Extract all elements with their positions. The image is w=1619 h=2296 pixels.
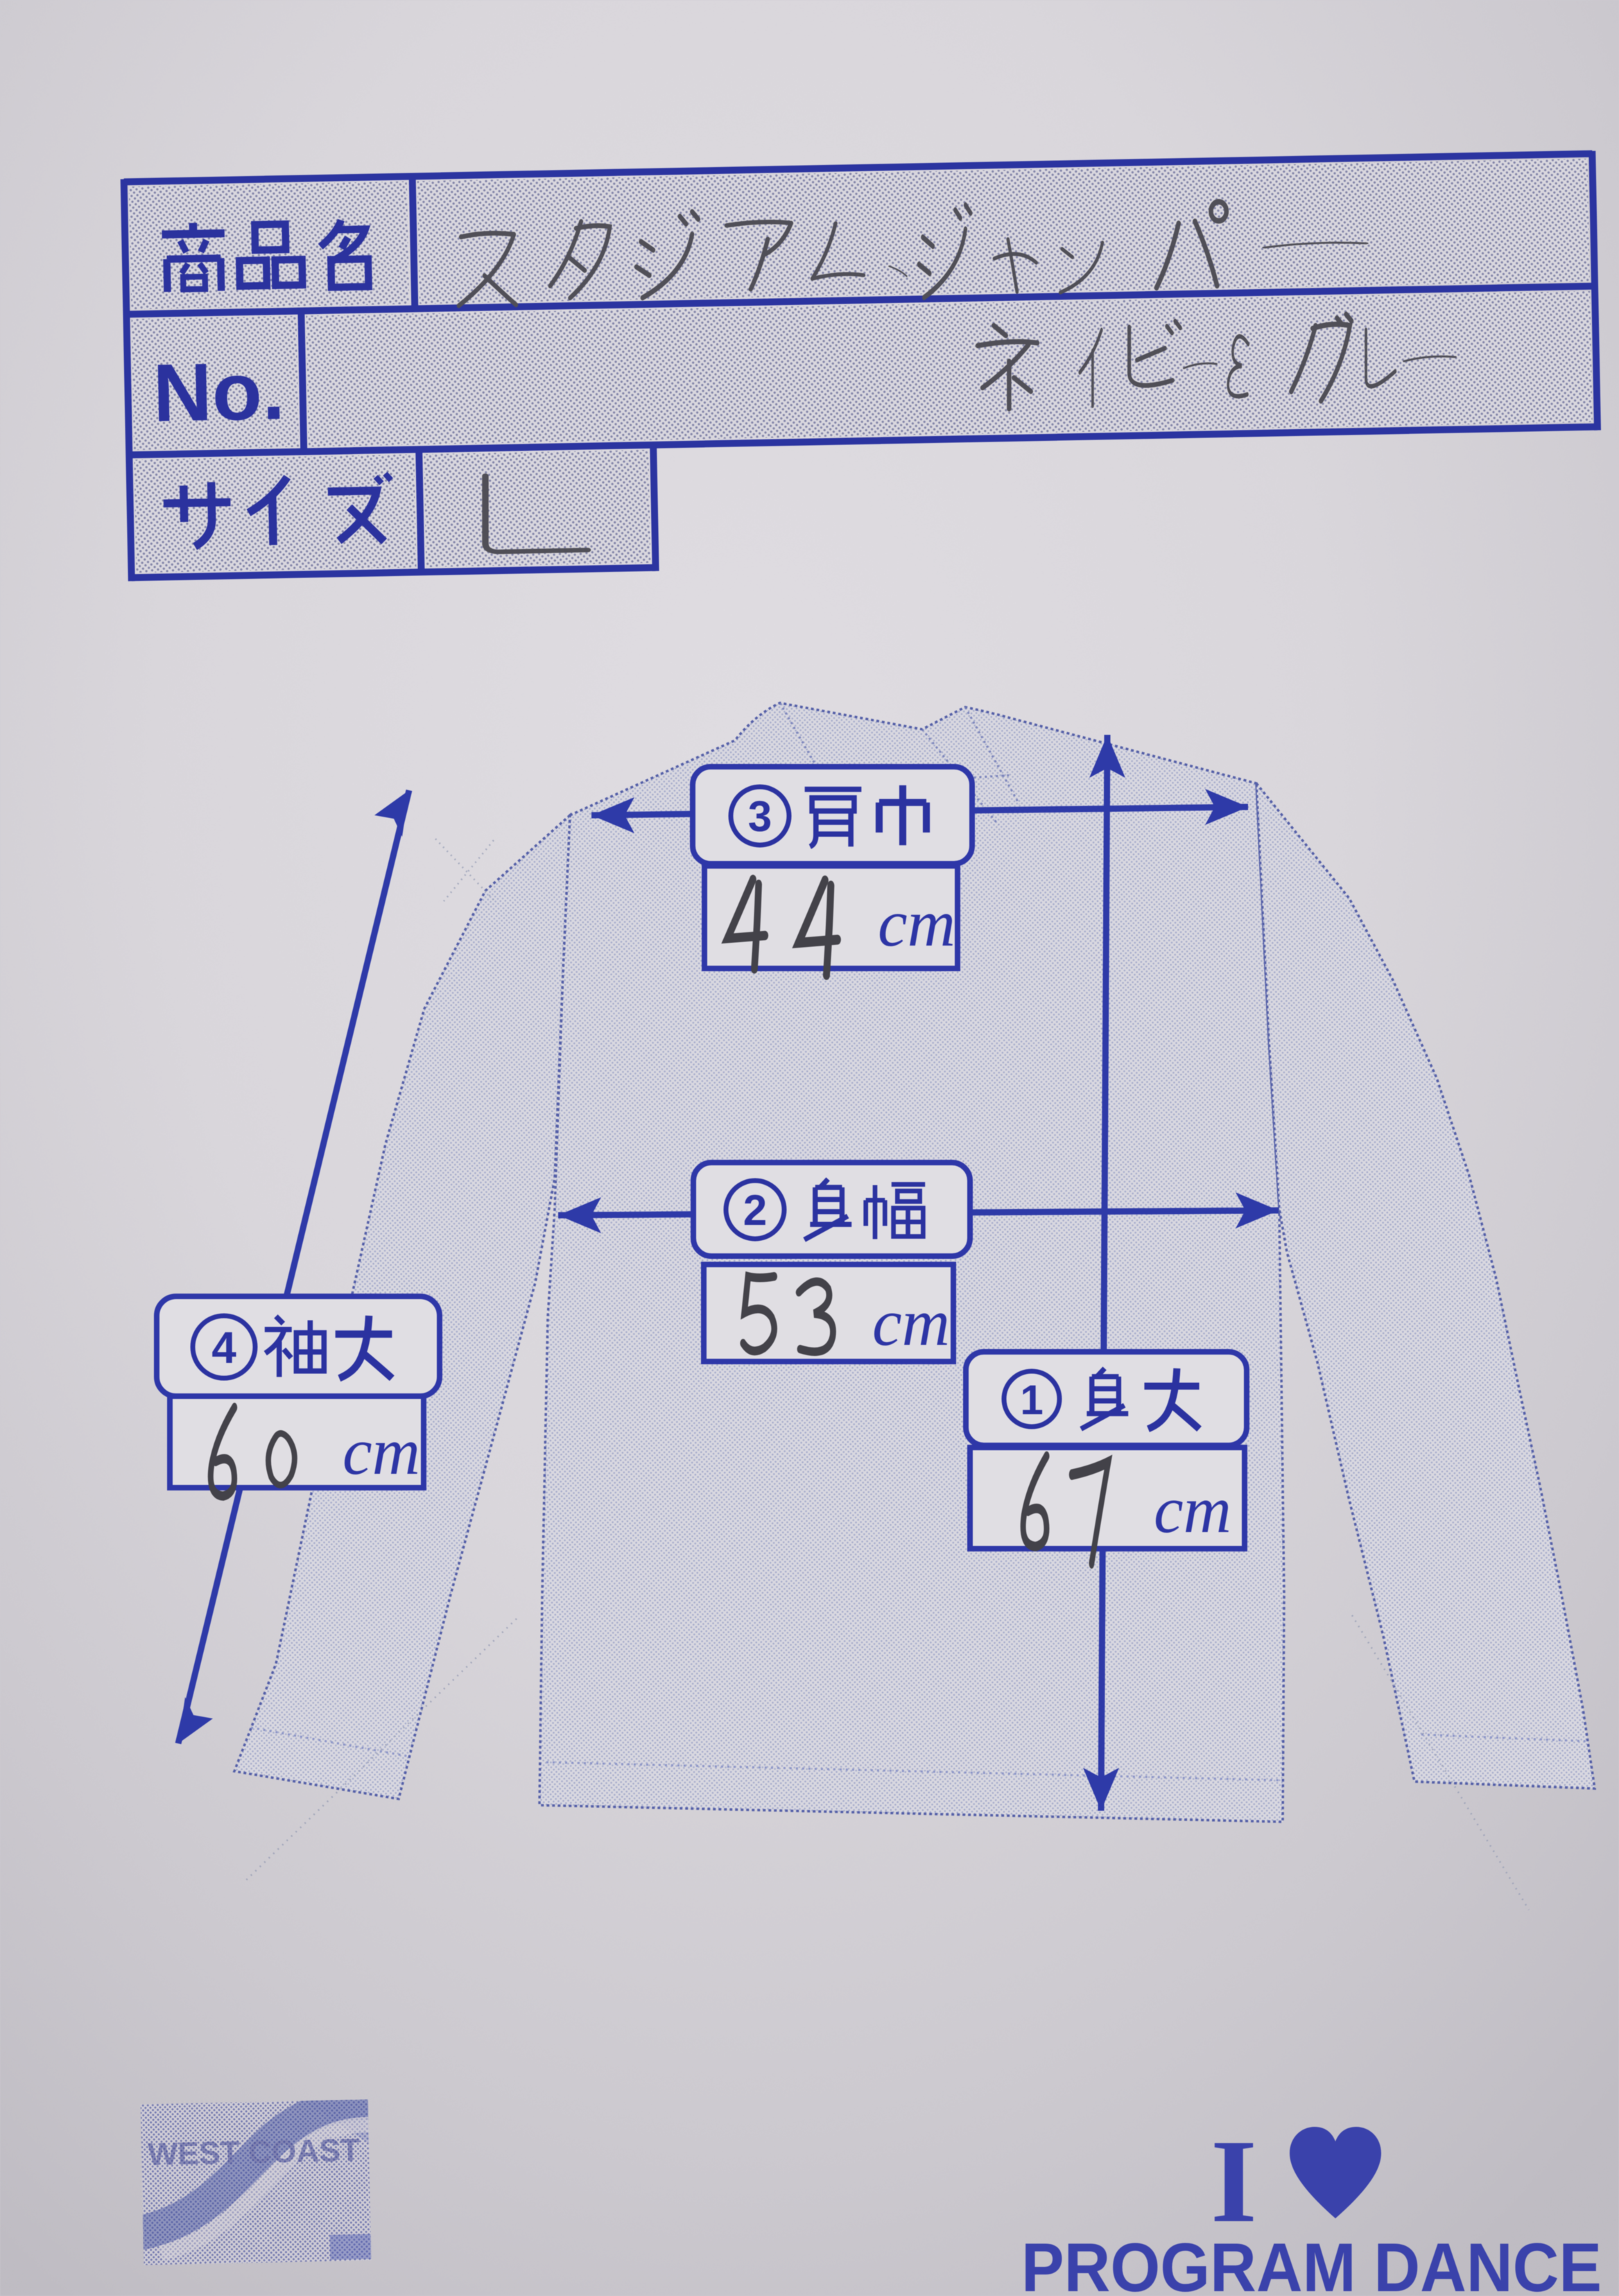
svg-text:cm: cm — [1154, 1472, 1231, 1547]
svg-text:2: 2 — [743, 1187, 767, 1235]
svg-text:1: 1 — [1020, 1377, 1043, 1423]
svg-text:I: I — [1211, 2116, 1257, 2247]
svg-text:cm: cm — [878, 886, 955, 960]
svg-text:4: 4 — [211, 1323, 236, 1373]
svg-text:cm: cm — [872, 1285, 950, 1359]
svg-text:cm: cm — [343, 1414, 420, 1488]
svg-text:3: 3 — [748, 793, 772, 841]
svg-text:No.: No. — [152, 345, 286, 440]
svg-text:PROGRAM DANCE: PROGRAM DANCE — [1021, 2229, 1602, 2296]
